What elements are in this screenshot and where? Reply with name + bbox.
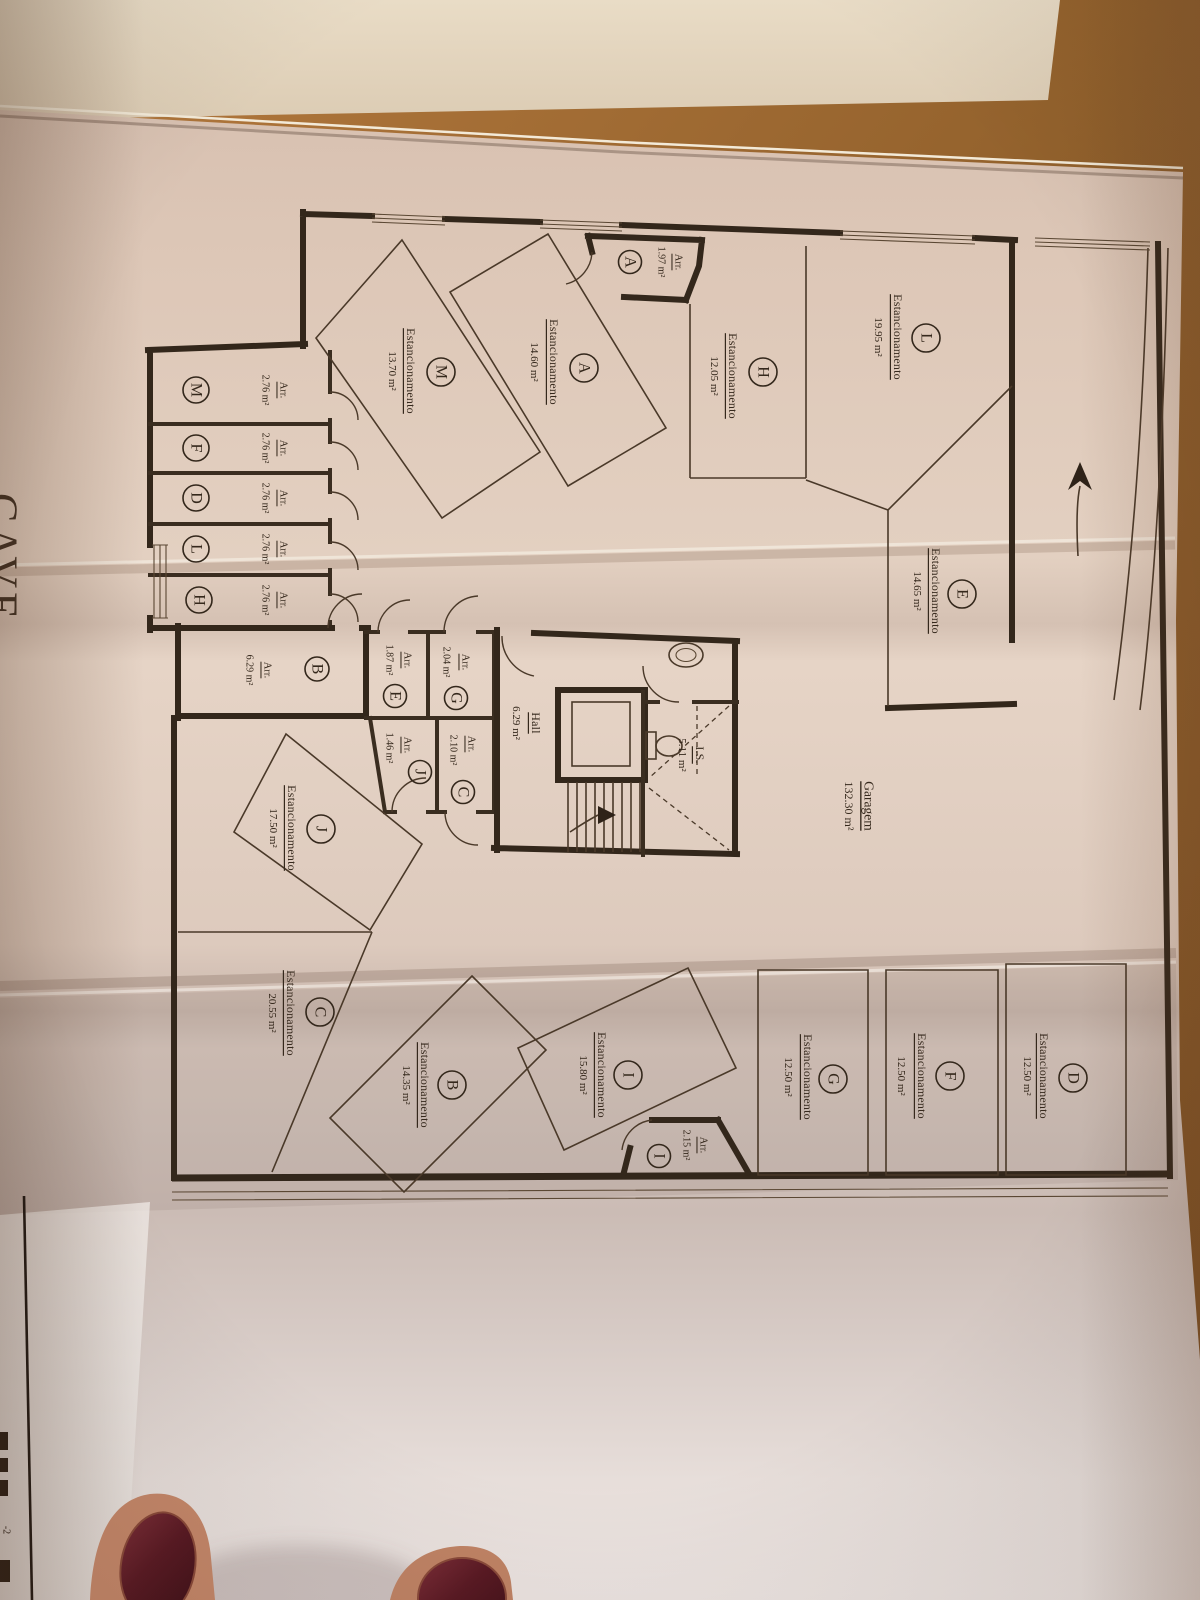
photo-of-floor-plan: L Estancionamento 19.95 m² A Estancionam… (0, 0, 1200, 1600)
floor-plan-scene: L Estancionamento 19.95 m² A Estancionam… (0, 0, 1200, 1600)
vignette (0, 0, 1200, 1600)
